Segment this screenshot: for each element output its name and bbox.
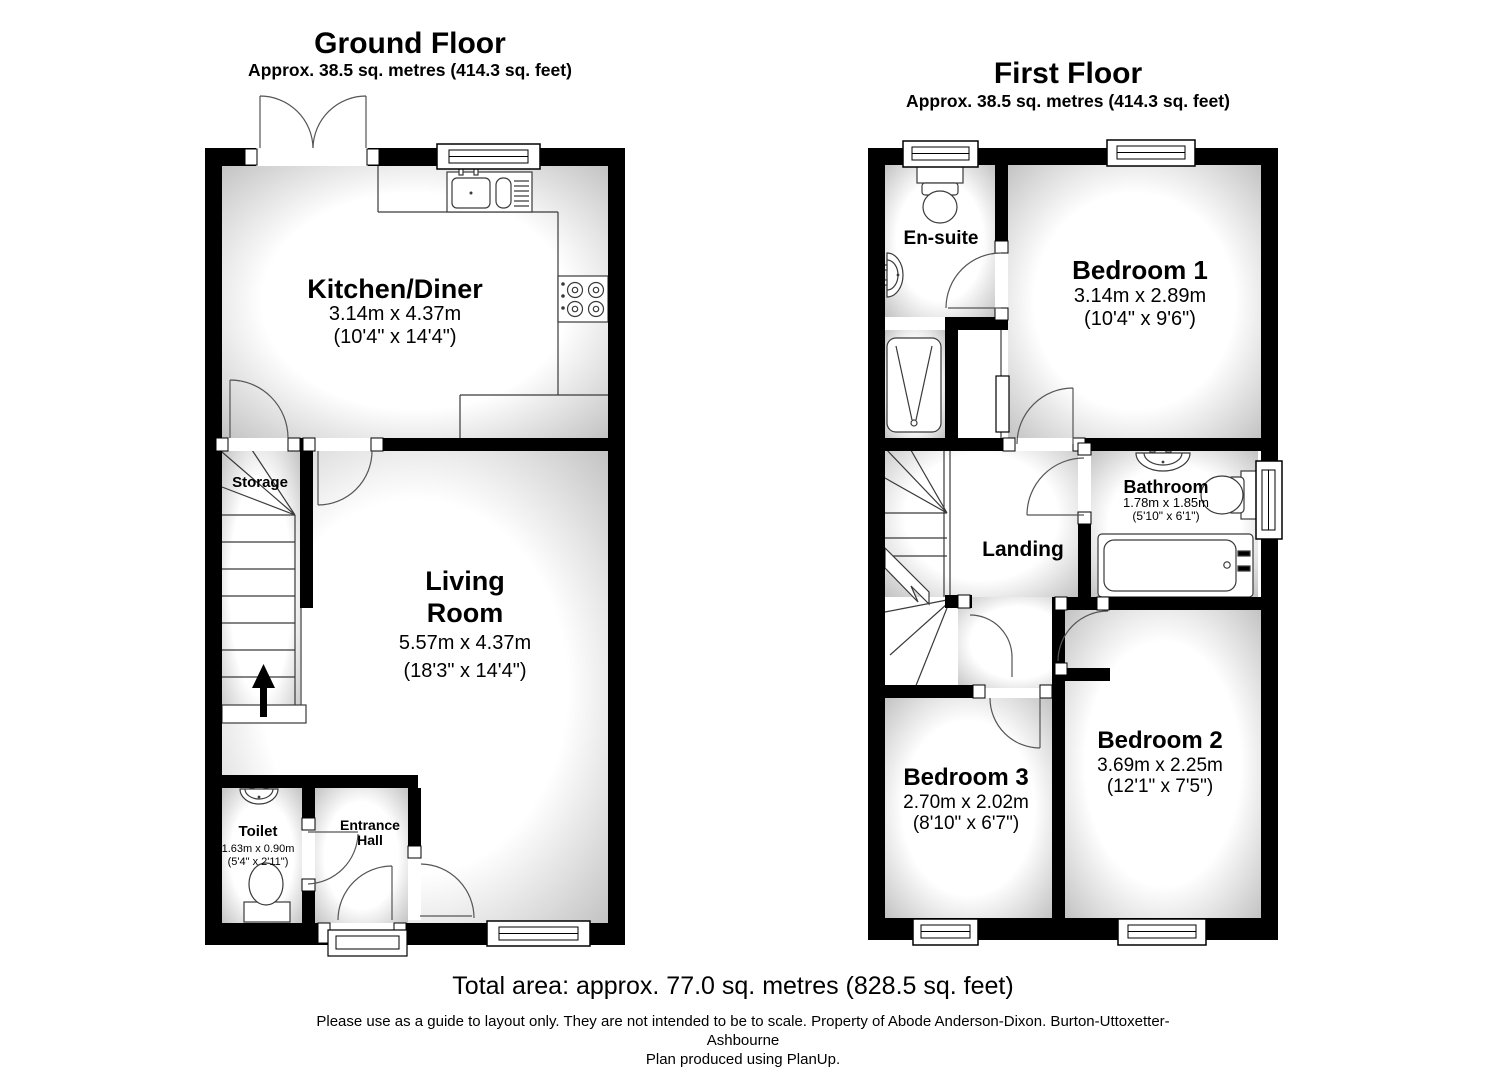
living-room-metric: 5.57m x 4.37m xyxy=(399,632,531,654)
bedroom2-imperial: (12'1" x 7'5") xyxy=(1107,776,1213,797)
living-room-label-1: Living xyxy=(425,566,505,596)
kitchen-hob xyxy=(558,276,608,322)
bedroom3-label: Bedroom 3 xyxy=(903,765,1028,792)
patio-double-door xyxy=(260,96,366,148)
bathtub xyxy=(1098,534,1253,597)
airing-cupboard xyxy=(996,330,1009,438)
living-room-label-2: Room xyxy=(427,598,504,628)
first-floor-title: First Floor xyxy=(994,57,1142,91)
bathroom-imperial: (5'10" x 6'1") xyxy=(1132,510,1199,523)
ensuite-shower xyxy=(887,338,941,432)
front-door-threshold xyxy=(328,930,407,956)
total-area-text: Total area: approx. 77.0 sq. metres (828… xyxy=(452,972,1013,1000)
bedroom3-metric: 2.70m x 2.02m xyxy=(903,792,1029,813)
entrance-hall-label-2: Hall xyxy=(357,833,383,849)
toilet-label: Toilet xyxy=(239,824,278,841)
first-floor-area: Approx. 38.5 sq. metres (414.3 sq. feet) xyxy=(906,92,1230,112)
bedroom1-label: Bedroom 1 xyxy=(1072,256,1208,285)
bedroom2-metric: 3.69m x 2.25m xyxy=(1097,755,1223,776)
bedroom1-metric: 3.14m x 2.89m xyxy=(1074,285,1206,307)
landing-label: Landing xyxy=(982,538,1064,562)
ground-floor-area: Approx. 38.5 sq. metres (414.3 sq. feet) xyxy=(248,61,572,81)
bedroom3-window xyxy=(913,919,978,945)
bedroom2-window xyxy=(1118,919,1206,945)
bedroom2-label: Bedroom 2 xyxy=(1097,728,1222,755)
bathroom-window xyxy=(1256,461,1282,539)
bedroom3-imperial: (8'10" x 6'7") xyxy=(913,813,1019,834)
disclaimer-line-1: Please use as a guide to layout only. Th… xyxy=(316,1014,1169,1031)
bedroom1-imperial: (10'4" x 9'6") xyxy=(1084,308,1196,330)
ensuite-label: En-suite xyxy=(904,228,979,249)
kitchen-label: Kitchen/Diner xyxy=(307,274,483,304)
ensuite-window xyxy=(903,141,978,167)
toilet-metric: 1.63m x 0.90m xyxy=(222,843,295,855)
kitchen-imperial: (10'4" x 14'4") xyxy=(333,326,456,348)
kitchen-sink xyxy=(447,166,532,212)
floorplan-drawing xyxy=(0,0,1485,1080)
credit-text: Plan produced using PlanUp. xyxy=(646,1052,840,1069)
toilet-imperial: (5'4" x 2'11") xyxy=(228,856,289,868)
storage-label: Storage xyxy=(232,475,288,492)
floorplan-page: Ground Floor Approx. 38.5 sq. metres (41… xyxy=(0,0,1485,1080)
living-room-imperial: (18'3" x 14'4") xyxy=(403,660,526,682)
kitchen-window xyxy=(437,144,540,169)
bedroom1-window xyxy=(1107,140,1195,166)
ground-floor-title: Ground Floor xyxy=(314,27,506,61)
disclaimer-line-2: Ashbourne xyxy=(707,1033,780,1050)
living-room-window xyxy=(487,921,590,946)
kitchen-metric: 3.14m x 4.37m xyxy=(329,303,461,325)
